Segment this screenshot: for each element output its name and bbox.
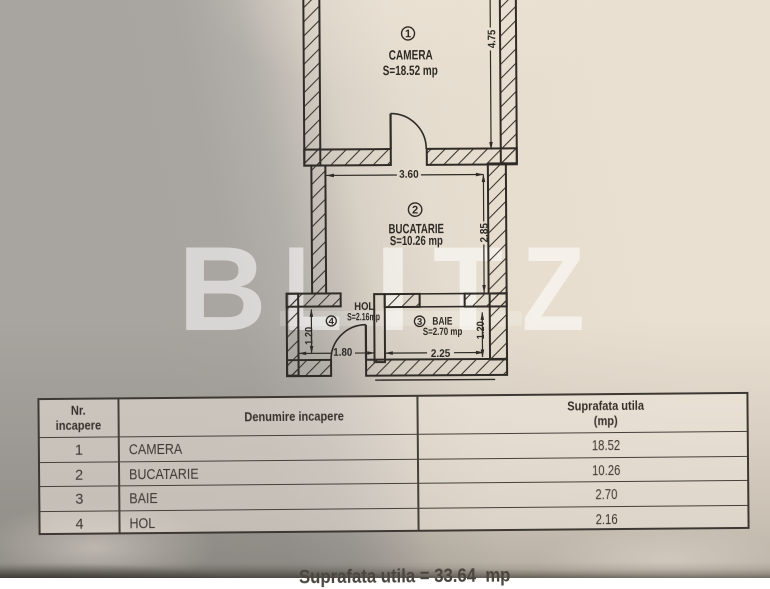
svg-text:2.85: 2.85 bbox=[479, 223, 491, 243]
svg-text:S=2.16mp: S=2.16mp bbox=[347, 311, 380, 323]
svg-text:4: 4 bbox=[329, 316, 335, 327]
svg-text:4.75: 4.75 bbox=[486, 30, 498, 49]
svg-text:1.20: 1.20 bbox=[303, 327, 315, 345]
svg-text:1.20: 1.20 bbox=[475, 321, 487, 339]
svg-text:CAMERA: CAMERA bbox=[389, 47, 433, 62]
svg-text:1.80: 1.80 bbox=[333, 347, 352, 359]
svg-text:2: 2 bbox=[412, 204, 418, 216]
svg-text:S=18.52 mp: S=18.52 mp bbox=[383, 63, 438, 78]
svg-text:2.25: 2.25 bbox=[431, 348, 451, 360]
svg-text:S=2.70 mp: S=2.70 mp bbox=[423, 326, 463, 338]
svg-text:3: 3 bbox=[417, 317, 422, 328]
svg-text:1: 1 bbox=[405, 28, 411, 40]
svg-text:S=10.26 mp: S=10.26 mp bbox=[390, 233, 443, 248]
svg-text:3.60: 3.60 bbox=[399, 169, 419, 181]
